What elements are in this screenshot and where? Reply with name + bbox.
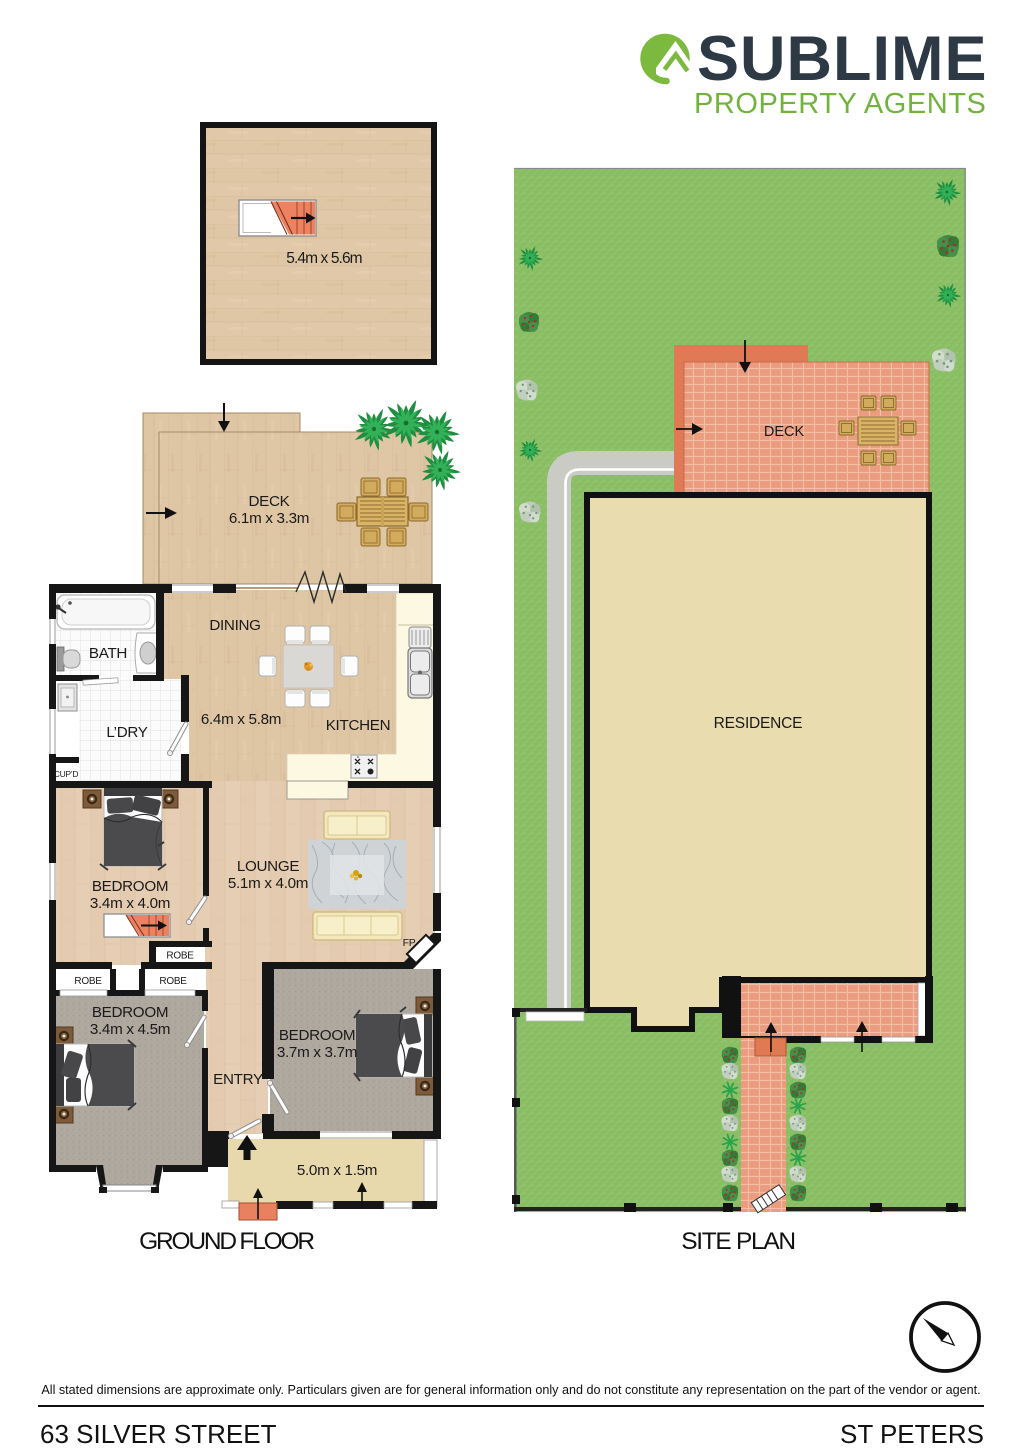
svg-text:RESIDENCE: RESIDENCE xyxy=(714,715,803,732)
svg-text:3.7m x 3.7m: 3.7m x 3.7m xyxy=(277,1044,357,1061)
svg-text:ENTRY: ENTRY xyxy=(213,1071,263,1088)
svg-text:63 SILVER STREET: 63 SILVER STREET xyxy=(40,1419,277,1449)
svg-text:PROPERTY AGENTS: PROPERTY AGENTS xyxy=(694,88,986,120)
svg-text:BEDROOM: BEDROOM xyxy=(92,1004,168,1021)
svg-text:5.4m x 5.6m: 5.4m x 5.6m xyxy=(286,250,361,267)
svg-text:L’DRY: L’DRY xyxy=(106,724,147,741)
svg-text:ROBE: ROBE xyxy=(166,951,194,962)
svg-text:BEDROOM: BEDROOM xyxy=(92,878,168,895)
svg-text:BEDROOM: BEDROOM xyxy=(279,1027,355,1044)
svg-text:ST PETERS: ST PETERS xyxy=(840,1419,984,1449)
svg-text:3.4m x 4.5m: 3.4m x 4.5m xyxy=(90,1021,170,1038)
svg-text:5.1m x 4.0m: 5.1m x 4.0m xyxy=(228,875,308,892)
svg-text:GROUND FLOOR: GROUND FLOOR xyxy=(139,1228,314,1255)
svg-text:LOUNGE: LOUNGE xyxy=(237,858,300,875)
svg-text:6.1m x 3.3m: 6.1m x 3.3m xyxy=(229,510,309,527)
svg-text:DINING: DINING xyxy=(209,617,260,634)
svg-text:FP: FP xyxy=(403,937,416,949)
svg-text:ROBE: ROBE xyxy=(159,976,187,987)
svg-text:DECK: DECK xyxy=(249,493,290,510)
svg-text:6.4m x 5.8m: 6.4m x 5.8m xyxy=(201,711,281,728)
svg-text:SUBLIME: SUBLIME xyxy=(697,24,988,94)
svg-text:5.0m x 1.5m: 5.0m x 1.5m xyxy=(297,1162,377,1179)
svg-text:All stated dimensions are appr: All stated dimensions are approximate on… xyxy=(41,1383,980,1397)
svg-text:DECK: DECK xyxy=(764,424,805,440)
svg-text:ROBE: ROBE xyxy=(74,976,102,987)
svg-text:SITE PLAN: SITE PLAN xyxy=(681,1228,795,1255)
svg-text:BATH: BATH xyxy=(89,645,127,662)
svg-text:CUP’D: CUP’D xyxy=(54,769,79,779)
svg-text:3.4m x 4.0m: 3.4m x 4.0m xyxy=(90,895,170,912)
svg-text:KITCHEN: KITCHEN xyxy=(326,717,391,734)
